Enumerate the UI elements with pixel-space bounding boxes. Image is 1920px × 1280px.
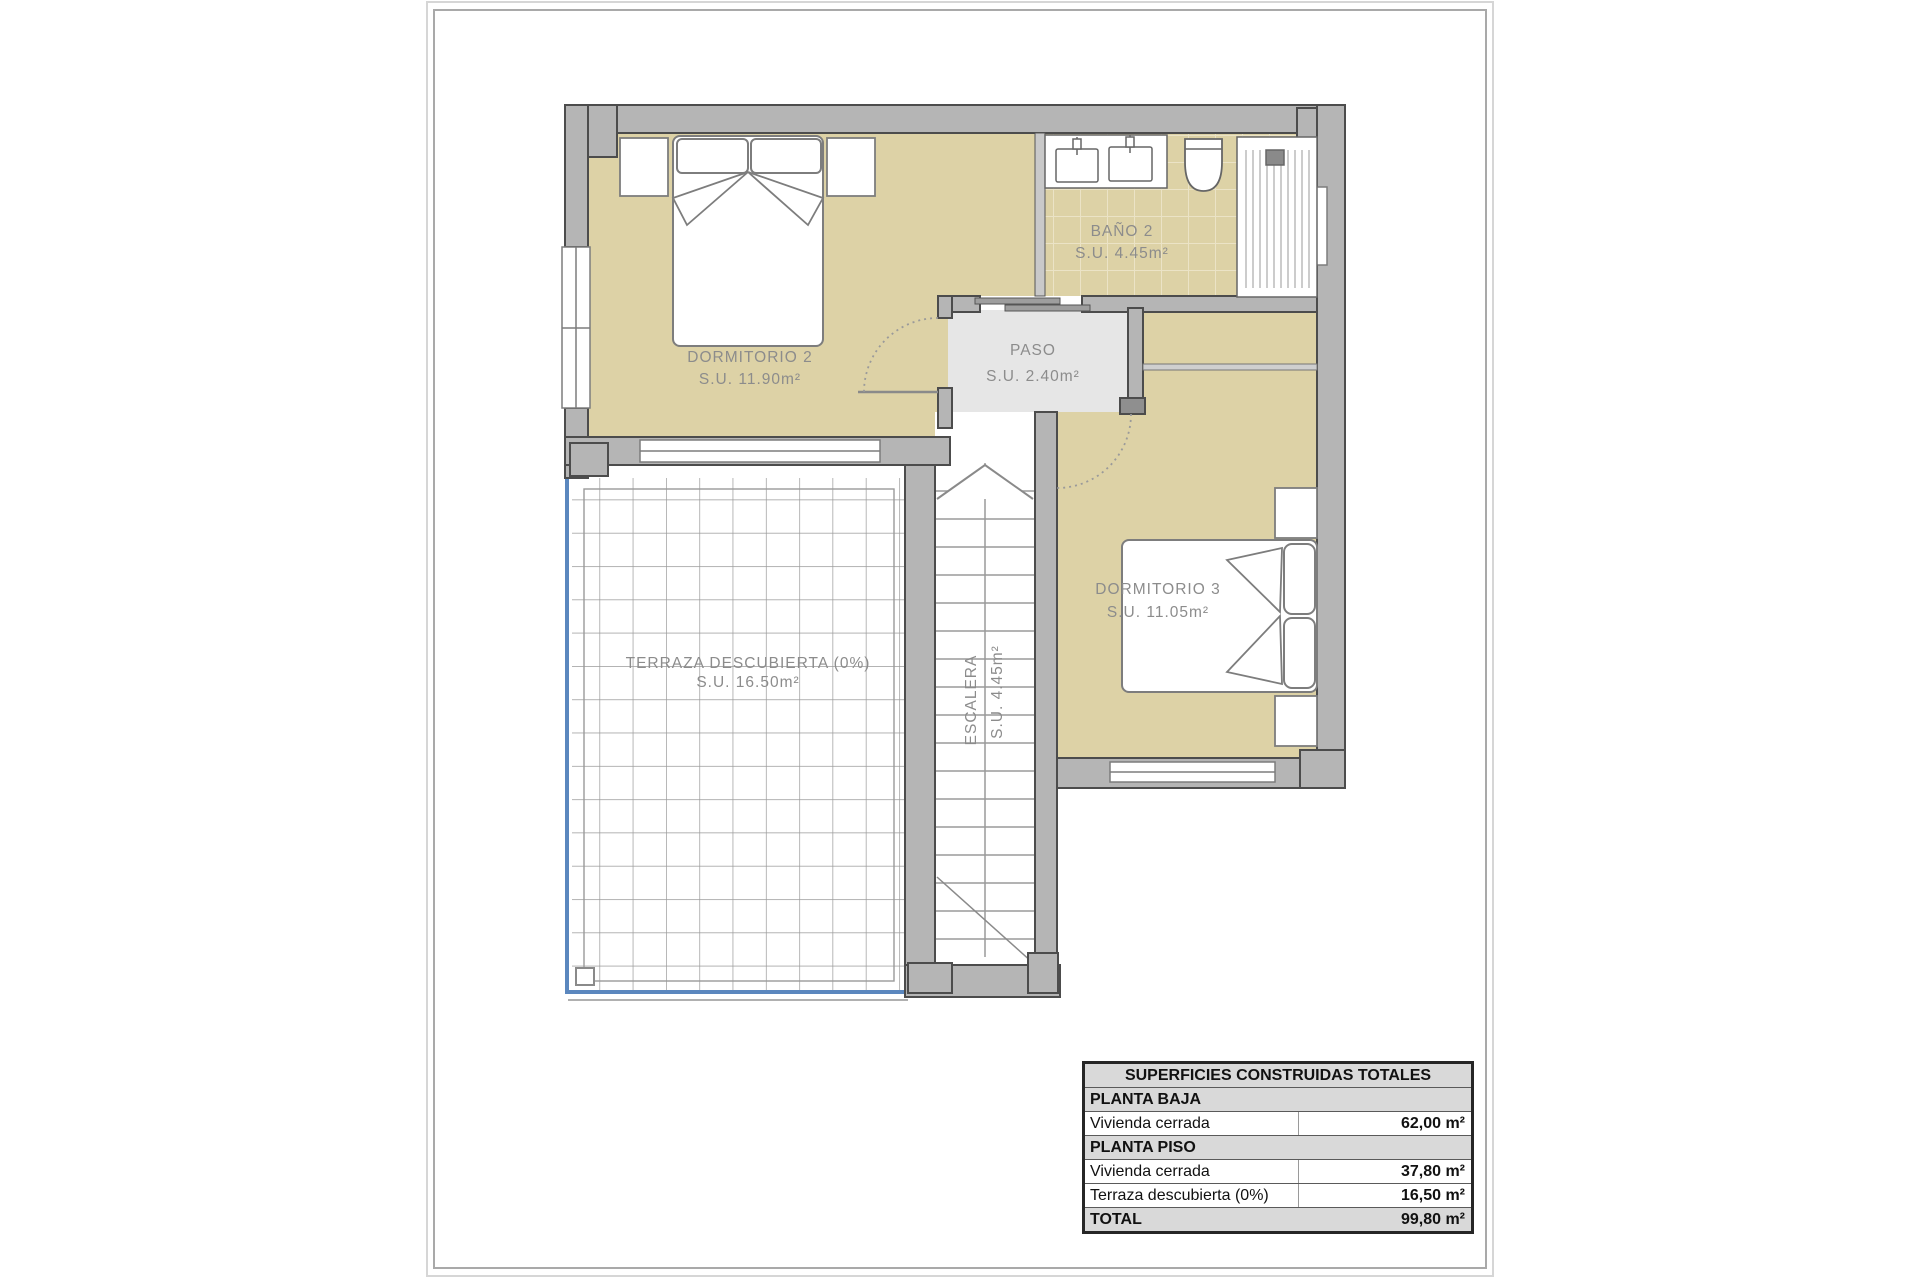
dormitorio-3-area: S.U. 11.05m² [1107,604,1209,621]
table-row-planta-piso: PLANTA PISO [1085,1135,1471,1159]
door-jamb-top [938,296,952,318]
paso-label: PASO [1010,342,1056,359]
dormitorio-2-area: S.U. 11.90m² [699,371,801,388]
wall-bath-bottom-b [1082,296,1317,312]
table-row-planta-baja: PLANTA BAJA [1085,1087,1471,1111]
pillow-icon [1284,544,1315,614]
wall-paso-dorm3 [1128,308,1143,400]
wall-top [565,105,1345,133]
wall-left-upper [565,105,588,247]
surfaces-summary-table: SUPERFICIES CONSTRUIDAS TOTALES PLANTA B… [1082,1061,1474,1234]
floor-plan-page: { "plan": { "rooms": [ {"name": "DORMITO… [0,0,1920,1280]
row-value: 62,00 m² [1298,1112,1471,1135]
pillar-bottom-right [1300,750,1345,788]
terrace-corner-marker [576,968,594,985]
table-row-terraza: Terraza descubierta (0%) 16,50 m² [1085,1183,1471,1207]
escalera-area: S.U. 4.45m² [989,645,1006,739]
table-title: SUPERFICIES CONSTRUIDAS TOTALES [1125,1064,1431,1087]
escalera-label: ESCALERA [963,655,980,746]
table-title-row: SUPERFICIES CONSTRUIDAS TOTALES [1085,1064,1471,1087]
shower-drain-icon [1266,150,1284,165]
nightstand-icon [620,138,668,196]
wall-dorm2-bath-divider [1035,133,1045,296]
nightstand-icon [1275,696,1317,746]
table-row-total: TOTAL 99,80 m² [1085,1207,1471,1231]
pillow-icon [1284,618,1315,688]
paso-floor [948,310,1128,412]
door-jamb-dorm3 [1120,398,1145,414]
nightstand-icon [827,138,875,196]
row-value: 37,80 m² [1298,1160,1471,1183]
door-jamb-bottom [938,388,952,428]
row-label: PLANTA BAJA [1085,1088,1298,1111]
row-label: Vivienda cerrada [1085,1160,1298,1183]
dormitorio-2-label: DORMITORIO 2 [687,349,812,366]
pillow-icon [751,139,821,173]
row-value: 99,80 m² [1298,1208,1471,1231]
table-row-vivienda-baja: Vivienda cerrada 62,00 m² [1085,1111,1471,1135]
row-label: Terraza descubierta (0%) [1085,1184,1298,1207]
terraza-area: S.U. 16.50m² [696,674,799,691]
terrace-grid [572,478,905,990]
pillar-terrace-topleft [570,443,608,476]
pillow-icon [677,139,748,173]
dormitorio-3-label: DORMITORIO 3 [1095,581,1220,598]
wall-stair-right [1035,412,1057,997]
row-value: 16,50 m² [1298,1184,1471,1207]
floor-plan-drawing: DORMITORIO 2 S.U. 11.90m² BAÑO 2 S.U. 4.… [0,0,1920,1280]
dorm3-partition-line [1143,364,1317,370]
row-value [1298,1136,1471,1159]
pillar-stair-br [1028,953,1058,993]
bano-2-label: BAÑO 2 [1091,223,1154,240]
nightstand-icon [1275,488,1317,538]
toilet-icon [1185,139,1222,191]
table-row-vivienda-piso: Vivienda cerrada 37,80 m² [1085,1159,1471,1183]
wall-stair-left [905,465,935,997]
paso-area: S.U. 2.40m² [986,368,1080,385]
terraza-label: TERRAZA DESCUBIERTA (0%) [626,655,871,672]
row-label: PLANTA PISO [1085,1136,1298,1159]
row-value [1298,1088,1471,1111]
row-label: TOTAL [1085,1208,1298,1231]
bano-2-area: S.U. 4.45m² [1075,245,1169,262]
row-label: Vivienda cerrada [1085,1112,1298,1135]
pillar-stair-bl [908,963,952,993]
